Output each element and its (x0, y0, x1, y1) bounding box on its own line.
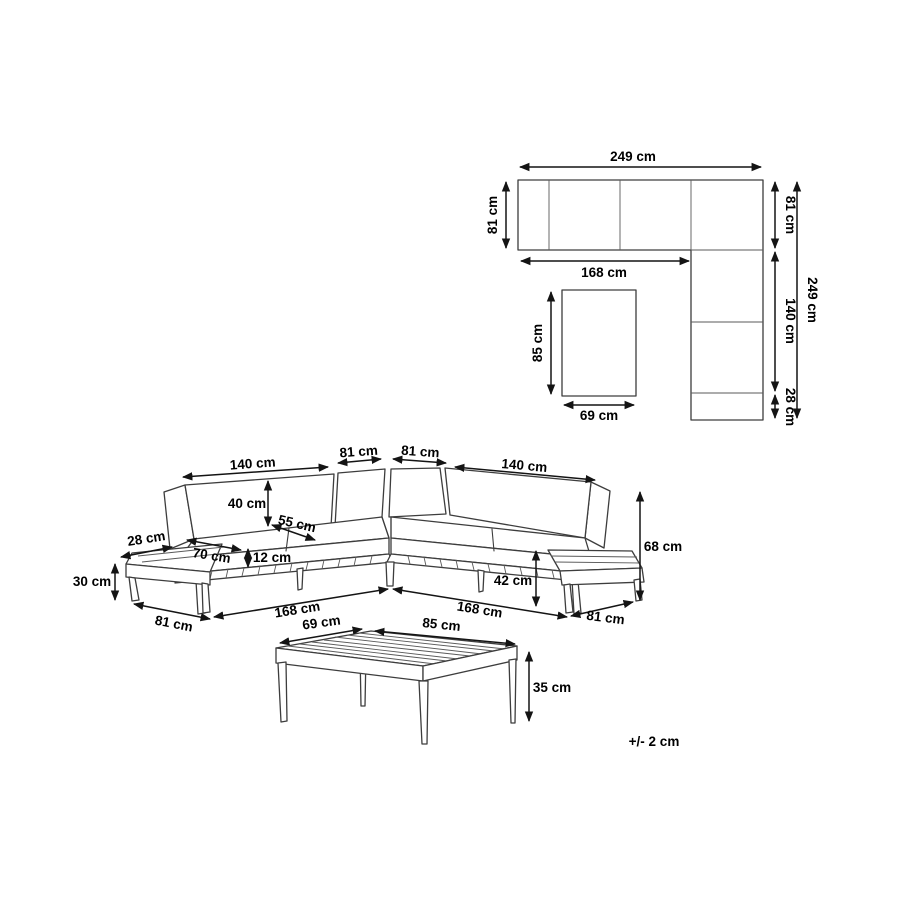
table-3d-view: 69 cm 85 cm 35 cm (276, 612, 571, 744)
sofa-left-module-label: 140 cm (229, 454, 276, 472)
table-height-label: 35 cm (533, 680, 571, 695)
sofa-right-shelf-leg-a (564, 584, 573, 613)
sofa-backrest-corner-right (389, 468, 446, 517)
sofa-backrest-height-label: 40 cm (228, 496, 266, 511)
sofa-left-shelf-leg-a (129, 577, 139, 601)
plan-table-depth-label: 85 cm (530, 324, 545, 362)
plan-inner-width-label: 168 cm (581, 265, 627, 280)
sofa-seat-height-label: 42 cm (494, 573, 532, 588)
table-right-leg (509, 659, 516, 723)
sofa-shelf-depth-label: 28 cm (126, 528, 166, 549)
sofa-left-shelf-leg-b (202, 583, 210, 613)
sofa-right-shelf-top (548, 550, 642, 571)
table-left-leg (278, 662, 287, 722)
sofa-right-length-label: 168 cm (456, 599, 504, 621)
plan-right-length-label: 140 cm (783, 298, 798, 344)
sofa-corner-left-label: 81 cm (339, 443, 378, 461)
plan-table-width-label: 69 cm (580, 408, 618, 423)
plan-total-depth-label: 249 cm (805, 277, 820, 323)
table-length-label: 85 cm (422, 615, 462, 634)
dimension-diagram: 249 cm 81 cm 168 cm 81 cm 140 cm 28 cm 2… (0, 0, 920, 920)
sofa-left-end-depth-label: 81 cm (154, 613, 194, 635)
plan-corner-depth-label: 81 cm (783, 196, 798, 234)
sofa-3d-view: 140 cm 81 cm 81 cm 140 cm 40 cm 55 cm 70… (73, 443, 682, 635)
diagram-svg: 249 cm 81 cm 168 cm 81 cm 140 cm 28 cm 2… (0, 0, 920, 920)
sofa-corner-right-label: 81 cm (401, 443, 440, 461)
plan-side-depth-label: 81 cm (485, 196, 500, 234)
plan-sofa-outline (518, 180, 763, 420)
table-front-leg (419, 681, 428, 744)
plan-table-outline (562, 290, 636, 396)
sofa-right-shelf-leg-b (634, 579, 642, 601)
sofa-total-height-label: 68 cm (644, 539, 682, 554)
sofa-right-shelf-front (560, 568, 644, 585)
plan-view: 249 cm 81 cm 168 cm 81 cm 140 cm 28 cm 2… (485, 149, 820, 426)
plan-right-end-label: 28 cm (783, 388, 798, 426)
sofa-right-end-depth-label: 81 cm (586, 608, 626, 628)
sofa-mid-leg-left (297, 568, 303, 590)
plan-total-width-label: 249 cm (610, 149, 656, 164)
sofa-corner-leg (386, 562, 394, 586)
tolerance-note: +/- 2 cm (629, 734, 680, 749)
sofa-cushion-thickness-label: 12 cm (253, 550, 291, 565)
sofa-mid-leg-right (478, 570, 484, 592)
sofa-shelf-height-label: 30 cm (73, 574, 111, 589)
